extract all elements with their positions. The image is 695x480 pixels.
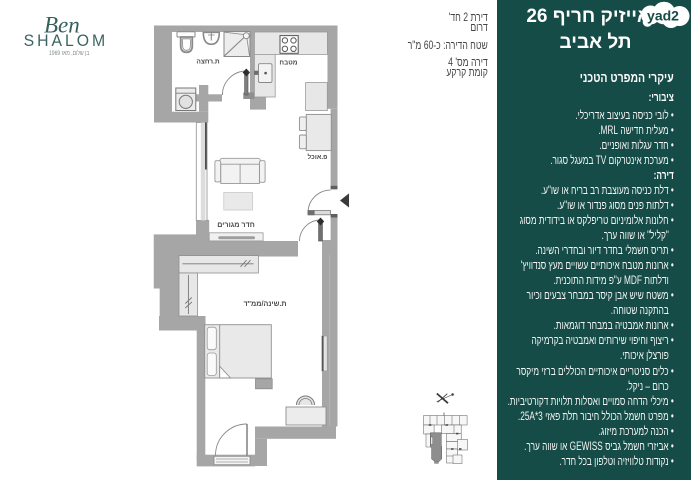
svg-text:ת.רחצה: ת.רחצה [196, 59, 220, 66]
svg-text:מטבח: מטבח [279, 60, 297, 67]
svg-text:פ.אוכל: פ.אוכל [308, 153, 328, 161]
svg-text:yad2: yad2 [647, 7, 679, 23]
svg-text:חדר מגורים: חדר מגורים [217, 220, 255, 229]
svg-text:ת.שינה/ממ"ד: ת.שינה/ממ"ד [243, 299, 286, 308]
